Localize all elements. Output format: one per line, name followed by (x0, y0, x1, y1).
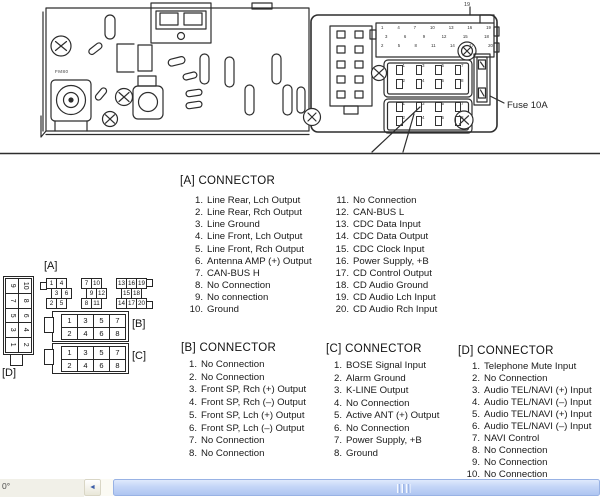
pin-label: CD Control Output (353, 268, 432, 280)
pin-item: 2.No Connection (184, 372, 306, 385)
pin-item: 12.CAN-BUS L (330, 207, 437, 219)
panel-pin-number: 16 (467, 25, 472, 30)
pin-item: 1.Line Rear, Lch Output (186, 195, 312, 207)
pin-item: 10.Ground (186, 304, 312, 316)
pin-cell: 11 (91, 298, 102, 309)
pin-item: 5.Front SP, Lch (+) Output (184, 410, 306, 423)
pin-item: 5.Audio TEL/NAVI (+) Input (461, 409, 592, 421)
pin-item: 4.Audio TEL/NAVI (–) Input (461, 397, 592, 409)
screw-icon (304, 109, 321, 126)
screw-icon (372, 66, 387, 81)
pin-label: Active ANT (+) Output (346, 410, 439, 423)
panel-pin: 1 (396, 65, 403, 75)
scrollbar-left-arrow-button[interactable]: ◄ (84, 479, 101, 496)
pin-label: BOSE Signal Input (346, 360, 426, 373)
connector-c-section-title: [C] CONNECTOR (326, 343, 422, 355)
status-fragment: 0° (2, 481, 10, 491)
pin-label: Audio TEL/NAVI (+) Input (484, 409, 592, 421)
panel-pin: 4 (416, 79, 423, 89)
panel-pin-number: 14 (450, 43, 455, 48)
panel-pin: 4 (416, 116, 423, 126)
pin-label: No Connection (201, 448, 264, 461)
pin-item: 3.Line Ground (186, 219, 312, 231)
panel-pin-number: 5 (398, 43, 400, 48)
scrollbar-track[interactable] (101, 479, 113, 496)
pin-cell: 17 (126, 298, 137, 309)
scrollbar-thumb[interactable] (113, 479, 600, 496)
pin-item: 4.Front SP, Rch (–) Output (184, 397, 306, 410)
pin-cell: 4 (56, 278, 67, 289)
pin-cell: 14 (116, 298, 127, 309)
pin-item: 8.No Connection (186, 280, 312, 292)
a-block-pin-row: 369121518 (385, 34, 489, 39)
panel-pin-number: 13 (449, 25, 454, 30)
panel-pin-number: 2 (381, 43, 383, 48)
pin-label: Audio TEL/NAVI (–) Input (484, 397, 591, 409)
pin-item: 6.No Connection (329, 423, 439, 436)
pin-cell: 8 (81, 298, 92, 309)
pin-label: Front SP, Lch (–) Output (201, 423, 304, 436)
pin-label: CDC Clock Input (353, 244, 424, 256)
pin-cell: 9 (86, 288, 97, 299)
pin-label: No Connection (201, 435, 264, 448)
pin-item: 15.CDC Clock Input (330, 244, 437, 256)
pin-label: CAN-BUS L (353, 207, 404, 219)
statusbar-left-area (0, 479, 84, 497)
pin-label: No Connection (346, 423, 409, 436)
a-block-pin-row: 14710131619 (381, 25, 491, 30)
pin-item: 5.Active ANT (+) Output (329, 410, 439, 423)
pin-item: 14.CDC Data Output (330, 231, 437, 243)
pin-item: 13.CDC Data Input (330, 219, 437, 231)
connector-map-d-label: [D] (2, 367, 16, 379)
pin-item: 1.Telephone Mute Input (461, 361, 592, 373)
pin-cell: 3 (51, 288, 62, 299)
connector-b-pin-list: 1.No Connection2.No Connection3.Front SP… (184, 359, 306, 461)
pin-item: 8.No Connection (184, 448, 306, 461)
pin-label: Alarm Ground (346, 373, 406, 386)
radio-rear-view-drawing: FM80 (0, 0, 600, 172)
panel-pin-number: 19 (486, 25, 491, 30)
pin-item: 2.Line Rear, Rch Output (186, 207, 312, 219)
pin-label: K-LINE Output (346, 385, 408, 398)
connector-a-section-title: [A] CONNECTOR (180, 175, 275, 187)
panel-pin-number: 15 (463, 34, 468, 39)
panel-pin-number: 18 (484, 34, 489, 39)
pin-label: CD Audio Ground (353, 280, 428, 292)
connector-map-a-label: [A] (44, 260, 57, 272)
screw-icon (51, 36, 71, 56)
pin-label: No Connection (484, 445, 547, 457)
panel-pin-number: 11 (431, 43, 435, 48)
panel-pin: 2 (396, 79, 403, 89)
panel-pin: 8 (455, 79, 462, 89)
pin-item: 3.K-LINE Output (329, 385, 439, 398)
pin-item: 6.Antenna AMP (+) Output (186, 256, 312, 268)
pin-label: No Connection (201, 359, 264, 372)
chassis-stamp: FM80 (55, 69, 69, 74)
pin-cell: 1 (46, 278, 57, 289)
pin-cell: 10 (91, 278, 102, 289)
pin-item: 4.No Connection (329, 398, 439, 411)
pin-label: Ground (207, 304, 239, 316)
pin-cell: 6 (61, 288, 72, 299)
panel-pin-number: 1 (381, 25, 383, 30)
pin-cell: 13 (116, 278, 127, 289)
pin-label: No Connection (201, 372, 264, 385)
fuse-holder (474, 54, 490, 105)
panel-pin: 1 (396, 102, 403, 112)
panel-pin-number: 10 (430, 25, 435, 30)
pin-item: 3.Front SP, Rch (+) Output (184, 384, 306, 397)
pin-item: 7.No Connection (184, 435, 306, 448)
antenna-jack-icon (51, 80, 91, 131)
pin-cell: 2 (46, 298, 57, 309)
connector-d-pin-list: 1.Telephone Mute Input2.No Connection3.A… (461, 361, 592, 481)
panel-pin-number: 9 (423, 34, 425, 39)
panel-pin: 5 (435, 65, 442, 75)
panel-pin: 6 (435, 116, 442, 126)
pin19-tick-label: 19 (464, 2, 470, 8)
panel-pin-number: 7 (414, 25, 416, 30)
pin-label: Line Rear, Lch Output (207, 195, 300, 207)
panel-pin-number: 4 (397, 25, 399, 30)
pin-label: Line Rear, Rch Output (207, 207, 302, 219)
connector-c-pin-list: 1.BOSE Signal Input2.Alarm Ground3.K-LIN… (329, 360, 439, 460)
pin-item: 7.NAVI Control (461, 433, 592, 445)
pin-label: Ground (346, 448, 378, 461)
pin-item: 7.Power Supply, +B (329, 435, 439, 448)
connector-map-c-label: [C] (132, 350, 146, 362)
panel-pin-number: 8 (414, 43, 416, 48)
panel-pin: 3 (416, 102, 423, 112)
fuse-label: Fuse 10A (507, 100, 548, 111)
connector-map-a-tab (40, 282, 47, 290)
panel-pin-number: 20 (488, 43, 493, 48)
panel-pin-number: 12 (442, 34, 447, 39)
pin-label: No Connection (207, 280, 270, 292)
pin-item: 8.Ground (329, 448, 439, 461)
pin-label: Front SP, Lch (+) Output (201, 410, 305, 423)
left-arrow-icon: ◄ (89, 484, 96, 491)
pin-label: Front SP, Rch (+) Output (201, 384, 306, 397)
pin-label: Audio TEL/NAVI (+) Input (484, 385, 592, 397)
pin-label: CDC Data Output (353, 231, 428, 243)
pin-item: 11.No Connection (330, 195, 437, 207)
panel-pin: 2 (396, 116, 403, 126)
pin-item: 6.Front SP, Lch (–) Output (184, 423, 306, 436)
connector-map-b-key (44, 317, 54, 333)
pin-item: 8.No Connection (461, 445, 592, 457)
panel-pin-number: 17 (469, 43, 474, 48)
pin-label: No Connection (484, 373, 547, 385)
connector-map-c-outline (52, 343, 129, 374)
connector-b-section-title: [B] CONNECTOR (181, 342, 276, 354)
pin-item: 20.CD Audio Rch Input (330, 304, 437, 316)
scrollbar-grip-icon (397, 484, 411, 493)
chassis-outline (41, 3, 309, 137)
panel-pin-number: 6 (404, 34, 406, 39)
pin-label: Audio TEL/NAVI (–) Input (484, 421, 591, 433)
pin-item: 16.Power Supply, +B (330, 256, 437, 268)
pin-label: CAN-BUS H (207, 268, 260, 280)
panel-pin: 5 (435, 102, 442, 112)
pin-cell: 16 (126, 278, 137, 289)
pin-item: 2.Alarm Ground (329, 373, 439, 386)
connector-map-c-key (44, 349, 54, 365)
pin-item: 1.BOSE Signal Input (329, 360, 439, 373)
pin-label: CD Audio Lch Input (353, 292, 436, 304)
pin-item: 6.Audio TEL/NAVI (–) Input (461, 421, 592, 433)
connector-map-d-outline (3, 276, 34, 355)
pin-label: CDC Data Input (353, 219, 421, 231)
pin-item: 4.Line Front, Lch Output (186, 231, 312, 243)
pin-label: Antenna AMP (+) Output (207, 256, 312, 268)
pin-item: 3.Audio TEL/NAVI (+) Input (461, 385, 592, 397)
pin-cell: 15 (121, 288, 132, 299)
connector-map-d-key (10, 354, 23, 366)
screw-icon (116, 89, 133, 106)
pin-label: Power Supply, +B (346, 435, 422, 448)
pin-label: CD Audio Rch Input (353, 304, 437, 316)
pin-label: Line Ground (207, 219, 260, 231)
pin-label: No Connection (353, 195, 416, 207)
panel-pin: 6 (435, 79, 442, 89)
pin-item: 5.Line Front, Rch Output (186, 244, 312, 256)
panel-pin: 3 (416, 65, 423, 75)
pin-label: Line Front, Lch Output (207, 231, 302, 243)
pin-cell: 18 (131, 288, 142, 299)
connector-d-section-title: [D] CONNECTOR (458, 345, 554, 357)
connector-a-pin-list-left: 1.Line Rear, Lch Output2.Line Rear, Rch … (186, 195, 312, 317)
panel-pin: 8 (455, 116, 462, 126)
connector-block-d (330, 26, 372, 114)
pin-cell: 7 (81, 278, 92, 289)
pin-item: 1.No Connection (184, 359, 306, 372)
a-block-pin-row: 25811141720 (381, 43, 493, 48)
pin-item: 18.CD Audio Ground (330, 280, 437, 292)
pin-cell: 12 (96, 288, 107, 299)
connector-map-a-tab (146, 279, 153, 287)
pin-label: No Connection (484, 457, 547, 469)
pin-label: Power Supply, +B (353, 256, 429, 268)
pin-label: No Connection (346, 398, 409, 411)
page: FM80 (0, 0, 600, 497)
pin-label: No connection (207, 292, 268, 304)
pin-item: 7.CAN-BUS H (186, 268, 312, 280)
connector-map-b-label: [B] (132, 318, 145, 330)
panel-pin: 7 (455, 65, 462, 75)
pin-item: 17.CD Control Output (330, 268, 437, 280)
connector-a-pin-list-right: 11.No Connection12.CAN-BUS L13.CDC Data … (330, 195, 437, 317)
pin-item: 19.CD Audio Lch Input (330, 292, 437, 304)
pin-label: NAVI Control (484, 433, 539, 445)
connector-map-a-tab (146, 301, 153, 309)
panel-pin: 7 (455, 102, 462, 112)
pin-label: Line Front, Rch Output (207, 244, 304, 256)
pin-item: 9.No Connection (461, 457, 592, 469)
pin-label: Telephone Mute Input (484, 361, 576, 373)
pin-item: 2.No Connection (461, 373, 592, 385)
connector-map-b-outline (52, 311, 129, 342)
pin-label: Front SP, Rch (–) Output (201, 397, 306, 410)
panel-pin-number: 3 (385, 34, 387, 39)
pin-cell: 5 (56, 298, 67, 309)
screw-icon (103, 112, 118, 127)
pin-item: 9.No connection (186, 292, 312, 304)
